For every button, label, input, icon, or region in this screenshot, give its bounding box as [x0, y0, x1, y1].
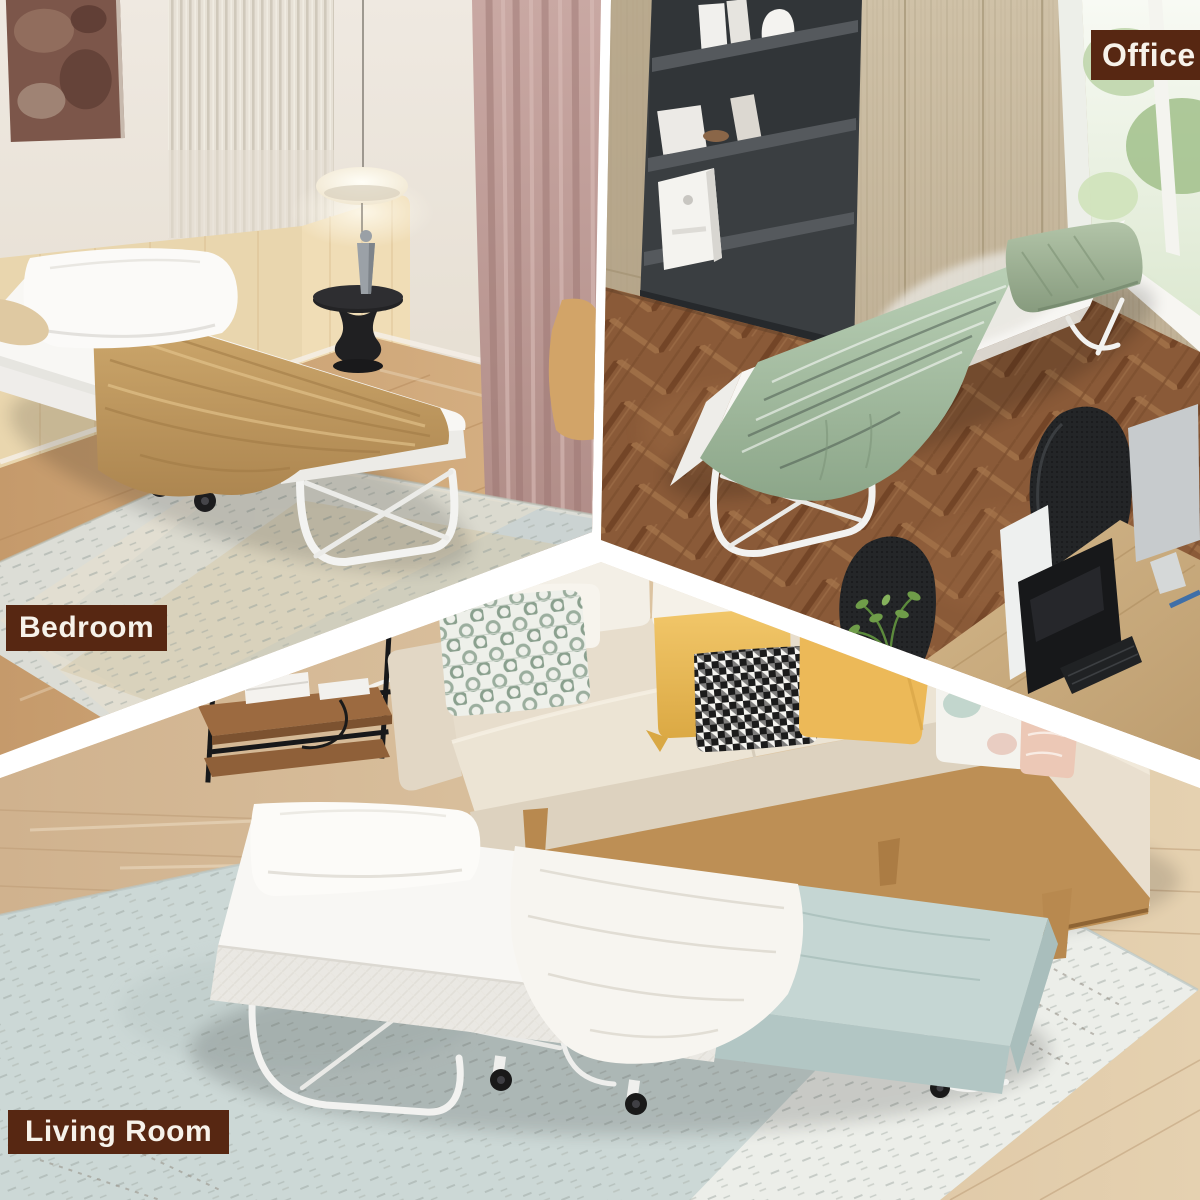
wall-art: [6, 0, 125, 142]
monitor-back: [1128, 404, 1200, 562]
living-room-label: Living Room: [8, 1110, 229, 1154]
office-label: Office: [1091, 30, 1200, 80]
room-collage: Bedroom Office Living Room: [0, 0, 1200, 1200]
pillow-white-bed: [250, 802, 480, 896]
collage-artwork: [0, 0, 1200, 1200]
appliance-white: [658, 168, 722, 270]
accent-chair: [549, 299, 601, 441]
pillow-white: [24, 248, 238, 348]
pillow-patterned: [438, 590, 590, 716]
bookshelf: [640, 0, 862, 354]
bedroom-label: Bedroom: [6, 605, 167, 651]
